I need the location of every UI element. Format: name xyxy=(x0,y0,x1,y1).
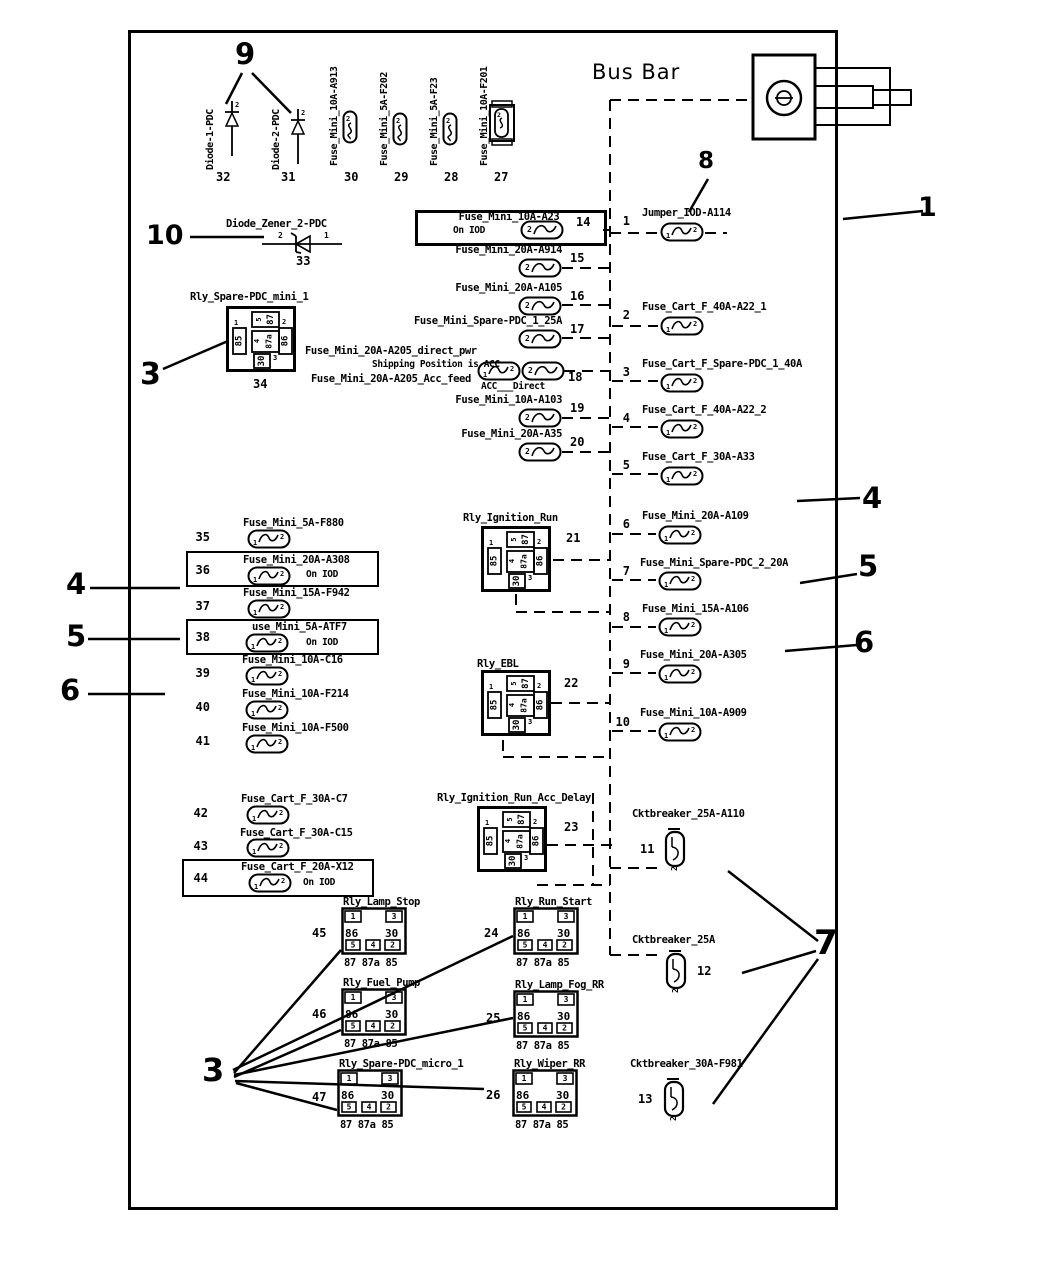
item-number: 13 xyxy=(638,1092,652,1106)
fuse-sub-label: ACC___Direct xyxy=(481,381,545,392)
svg-text:1: 1 xyxy=(666,326,670,334)
relay-icon: 851587487a862303 xyxy=(477,806,547,872)
fuse-label: Fuse_Mini_Spare-PDC_1_25A xyxy=(307,315,562,327)
svg-text:4: 4 xyxy=(508,703,516,707)
item-number: 39 xyxy=(188,666,210,680)
item-number: 26 xyxy=(486,1088,500,1102)
item-number: 31 xyxy=(281,170,295,184)
svg-text:30: 30 xyxy=(512,720,522,731)
svg-text:2: 2 xyxy=(278,231,283,240)
fuse-label: Fuse_Mini_20A-A105 xyxy=(307,282,562,294)
svg-text:1: 1 xyxy=(664,732,668,740)
fuse-label: Fuse_Mini_15A-A106 xyxy=(642,603,749,615)
fuse-icon: 2 xyxy=(518,442,562,462)
item-number: 7 xyxy=(614,564,630,578)
svg-text:2: 2 xyxy=(693,377,697,385)
fuse-icon: 12 xyxy=(660,316,704,336)
svg-text:2: 2 xyxy=(525,413,530,422)
svg-text:30: 30 xyxy=(385,1008,398,1021)
relay-icon: 138630542 xyxy=(337,1069,403,1117)
fuse-icon: 2 xyxy=(518,329,562,349)
svg-text:3: 3 xyxy=(392,993,397,1002)
fuse-label: Fuse_Mini_5A-F880 xyxy=(243,517,344,529)
svg-text:1: 1 xyxy=(251,744,255,752)
svg-text:87a: 87a xyxy=(265,334,274,349)
svg-text:2: 2 xyxy=(235,101,239,109)
svg-text:1: 1 xyxy=(253,576,257,584)
svg-text:1: 1 xyxy=(347,1074,352,1083)
fuse-icon: 12 xyxy=(658,525,702,545)
fuse-icon: 12 xyxy=(658,617,702,637)
svg-text:1: 1 xyxy=(253,539,257,547)
relay-icon: 851587487a862303 xyxy=(481,670,551,736)
fuse-icon: 2 xyxy=(520,220,564,240)
relay-label: Rly_Spare-PDC_mini_1 xyxy=(190,291,308,303)
svg-text:1: 1 xyxy=(251,710,255,718)
svg-text:2: 2 xyxy=(525,334,530,343)
fuse-label: Fuse_Mini_10A-F214 xyxy=(242,688,349,700)
circuit-breaker-icon: 2 xyxy=(664,948,688,996)
svg-text:1: 1 xyxy=(254,883,258,891)
svg-text:87: 87 xyxy=(521,678,531,689)
fuse-label: Fuse_Mini_10A-A103 xyxy=(307,394,562,406)
fuse-icon: 12 xyxy=(245,700,289,720)
fuse-label: Fuse_Mini_10A-C16 xyxy=(242,654,343,666)
item-number: 23 xyxy=(564,820,578,834)
svg-text:1: 1 xyxy=(666,429,670,437)
item-number: 25 xyxy=(486,1011,500,1025)
svg-text:2: 2 xyxy=(278,704,282,712)
svg-text:1: 1 xyxy=(253,609,257,617)
svg-text:2: 2 xyxy=(669,1116,678,1121)
item-number: 6 xyxy=(614,517,630,531)
item-number: 11 xyxy=(640,842,654,856)
fuse-label: Fuse_Cart_F_40A-A22_2 xyxy=(642,404,766,416)
relay-pin-caption: 87 87a 85 xyxy=(344,1038,397,1050)
item-number: 15 xyxy=(570,251,584,265)
svg-text:2: 2 xyxy=(386,1103,391,1112)
fuse-icon: 12 xyxy=(477,361,521,381)
svg-text:5: 5 xyxy=(255,317,263,321)
svg-text:5: 5 xyxy=(347,1103,352,1112)
relay-label: Rly_Ignition_Run xyxy=(463,512,558,524)
fuse-icon: 12 xyxy=(660,419,704,439)
svg-text:86: 86 xyxy=(536,556,546,567)
svg-text:1: 1 xyxy=(666,383,670,391)
callout-4-right: 4 xyxy=(862,484,882,513)
fuse-icon: 2 xyxy=(342,110,358,144)
svg-text:30: 30 xyxy=(257,356,267,367)
fuse-icon: 12 xyxy=(246,838,290,858)
svg-text:2: 2 xyxy=(691,529,695,537)
relay-pin-caption: 87 87a 85 xyxy=(340,1119,393,1131)
svg-text:2: 2 xyxy=(693,320,697,328)
breaker-label: Cktbreaker_25A-A110 xyxy=(632,808,745,820)
diode-2-label: Diode-2-PDC xyxy=(271,92,282,170)
svg-text:5: 5 xyxy=(510,681,518,685)
relay-icon: 851587487a862303 xyxy=(481,526,551,592)
svg-text:2: 2 xyxy=(562,1024,567,1033)
svg-text:4: 4 xyxy=(542,1103,547,1112)
relay-icon: 138630542 xyxy=(341,988,407,1036)
svg-text:1: 1 xyxy=(666,232,670,240)
item-number: 8 xyxy=(614,610,630,624)
svg-text:1: 1 xyxy=(485,819,489,827)
svg-text:30: 30 xyxy=(556,1089,569,1102)
relay-pin-caption: 87 87a 85 xyxy=(516,957,569,969)
fuse-icon: 12 xyxy=(248,873,292,893)
fuse-icon: 12 xyxy=(245,633,289,653)
svg-text:3: 3 xyxy=(563,1074,568,1083)
fuse-note: On IOD xyxy=(303,877,335,888)
svg-text:4: 4 xyxy=(371,941,376,950)
circuit-breaker-icon: 2 xyxy=(663,826,687,874)
svg-text:4: 4 xyxy=(253,339,261,343)
svg-text:2: 2 xyxy=(533,818,537,826)
item-number: 24 xyxy=(484,926,498,940)
fuse-icon: 12 xyxy=(245,734,289,754)
svg-text:86: 86 xyxy=(345,1008,359,1021)
pdc-fuse-diagram: Bus Bar Diode-1-PDC 2 32 Diode-2-PDC 2 3… xyxy=(0,0,1048,1273)
svg-text:4: 4 xyxy=(367,1103,372,1112)
svg-text:86: 86 xyxy=(341,1089,355,1102)
svg-text:2: 2 xyxy=(527,225,532,234)
svg-text:1: 1 xyxy=(664,674,668,682)
callout-6-right: 6 xyxy=(854,628,874,657)
item-number: 4 xyxy=(614,411,630,425)
fuse-icon: 2 xyxy=(442,112,458,146)
fuse-label: Fuse_Mini_5A-F202 xyxy=(379,66,390,166)
callout-3-top: 3 xyxy=(140,360,161,390)
bus-bar-label: Bus Bar xyxy=(592,60,680,84)
svg-text:2: 2 xyxy=(525,263,530,272)
svg-text:5: 5 xyxy=(351,941,356,950)
fuse-label: Fuse_Mini_Spare-PDC_2_20A xyxy=(640,557,788,569)
callout-9: 9 xyxy=(235,40,255,69)
fuse-icon: 2 xyxy=(518,296,562,316)
item-number: 17 xyxy=(570,322,584,336)
svg-text:87: 87 xyxy=(266,314,276,325)
svg-text:30: 30 xyxy=(381,1089,394,1102)
svg-text:2: 2 xyxy=(390,1022,395,1031)
svg-text:2: 2 xyxy=(528,366,533,375)
svg-text:30: 30 xyxy=(385,927,398,940)
svg-text:2: 2 xyxy=(282,318,286,326)
svg-text:86: 86 xyxy=(517,927,531,940)
diode-icon: 2 xyxy=(222,96,242,160)
item-number: 42 xyxy=(186,806,208,820)
svg-text:2: 2 xyxy=(561,1103,566,1112)
callout-4-left: 4 xyxy=(66,570,86,599)
item-number: 47 xyxy=(312,1090,326,1104)
jumper-icon: 12 xyxy=(660,222,704,242)
svg-text:86: 86 xyxy=(345,927,359,940)
svg-text:87: 87 xyxy=(517,814,527,825)
item-number: 44 xyxy=(186,871,208,885)
item-number: 5 xyxy=(614,458,630,472)
svg-text:3: 3 xyxy=(528,718,532,726)
svg-text:3: 3 xyxy=(524,854,528,862)
svg-text:1: 1 xyxy=(489,683,493,691)
item-number: 2 xyxy=(614,308,630,322)
item-number: 19 xyxy=(570,401,584,415)
callout-3-bottom: 3 xyxy=(202,1054,224,1086)
item-number: 35 xyxy=(188,530,210,544)
svg-text:3: 3 xyxy=(392,912,397,921)
fuse-label: Fuse_Mini_20A-A205_Acc_feed xyxy=(311,373,471,385)
svg-text:2: 2 xyxy=(280,533,284,541)
svg-text:5: 5 xyxy=(510,537,518,541)
svg-text:1: 1 xyxy=(252,848,256,856)
svg-text:3: 3 xyxy=(564,995,569,1004)
fuse-icon: 12 xyxy=(660,466,704,486)
fuse-icon: 2 xyxy=(518,258,562,278)
item-number: 29 xyxy=(394,170,408,184)
callout-8: 8 xyxy=(698,150,714,173)
diode-icon: 2 xyxy=(288,104,308,168)
breaker-label: Cktbreaker_30A-F981 xyxy=(630,1058,743,1070)
breaker-label: Cktbreaker_25A xyxy=(632,934,715,946)
item-number: 14 xyxy=(576,215,590,229)
svg-text:2: 2 xyxy=(279,809,283,817)
item-number: 45 xyxy=(312,926,326,940)
svg-text:5: 5 xyxy=(506,817,514,821)
svg-text:2: 2 xyxy=(446,117,450,125)
svg-text:1: 1 xyxy=(351,993,356,1002)
svg-text:1: 1 xyxy=(664,627,668,635)
svg-text:3: 3 xyxy=(528,574,532,582)
svg-text:2: 2 xyxy=(278,637,282,645)
item-number: 27 xyxy=(494,170,508,184)
fuse-label: Fuse_Mini_20A-A305 xyxy=(640,649,747,661)
svg-text:1: 1 xyxy=(523,995,528,1004)
fuse-icon: 12 xyxy=(245,666,289,686)
svg-text:2: 2 xyxy=(278,738,282,746)
item-number: 22 xyxy=(564,676,578,690)
svg-text:87a: 87a xyxy=(516,834,525,849)
svg-text:2: 2 xyxy=(280,570,284,578)
item-number: 9 xyxy=(614,657,630,671)
relay-icon: 138630542 xyxy=(513,990,579,1038)
item-number: 38 xyxy=(188,630,210,644)
svg-text:5: 5 xyxy=(351,1022,356,1031)
svg-text:2: 2 xyxy=(510,365,514,373)
svg-text:4: 4 xyxy=(508,559,516,563)
svg-text:86: 86 xyxy=(517,1010,531,1023)
svg-text:2: 2 xyxy=(562,941,567,950)
svg-text:1: 1 xyxy=(523,912,528,921)
svg-text:1: 1 xyxy=(664,535,668,543)
fuse-icon: 2 xyxy=(489,100,515,146)
item-number: 3 xyxy=(614,365,630,379)
relay-icon: 851587487a862303 xyxy=(226,306,296,372)
svg-text:30: 30 xyxy=(508,856,518,867)
fuse-label: Fuse_Mini_10A-F500 xyxy=(242,722,349,734)
relay-icon: 138630542 xyxy=(341,907,407,955)
svg-text:86: 86 xyxy=(516,1089,530,1102)
svg-text:1: 1 xyxy=(234,319,238,327)
fuse-label: Fuse_Cart_F_40A-A22_1 xyxy=(642,301,766,313)
item-number: 18 xyxy=(568,370,582,384)
svg-text:2: 2 xyxy=(691,726,695,734)
svg-text:2: 2 xyxy=(396,117,400,125)
svg-text:2: 2 xyxy=(537,682,541,690)
item-number: 46 xyxy=(312,1007,326,1021)
jumper-label: Jumper_IOD-A114 xyxy=(642,207,731,219)
callout-10: 10 xyxy=(146,222,184,249)
svg-text:1: 1 xyxy=(252,815,256,823)
fuse-note: On IOD xyxy=(306,569,338,580)
item-number: 21 xyxy=(566,531,580,545)
relay-label: Rly_Ignition_Run_Acc_Delay xyxy=(437,792,591,804)
item-number: 30 xyxy=(344,170,358,184)
svg-text:87a: 87a xyxy=(520,698,529,713)
item-number: 33 xyxy=(296,254,310,268)
item-number: 43 xyxy=(186,839,208,853)
fuse-icon: 12 xyxy=(658,571,702,591)
svg-text:2: 2 xyxy=(280,603,284,611)
svg-text:1: 1 xyxy=(483,371,487,379)
svg-text:87a: 87a xyxy=(520,554,529,569)
fuse-label: Fuse_Mini_20A-A35 xyxy=(307,428,562,440)
svg-text:87: 87 xyxy=(521,534,531,545)
fuse-icon: 12 xyxy=(660,373,704,393)
svg-text:2: 2 xyxy=(670,866,679,871)
svg-text:1: 1 xyxy=(351,912,356,921)
relay-label: Rly_EBL xyxy=(477,658,518,670)
fuse-label: Fuse_Mini_20A-A205_direct_pwr xyxy=(305,345,477,357)
svg-text:2: 2 xyxy=(279,842,283,850)
svg-text:3: 3 xyxy=(273,354,277,362)
svg-text:2: 2 xyxy=(691,575,695,583)
svg-text:2: 2 xyxy=(278,670,282,678)
relay-pin-caption: 87 87a 85 xyxy=(516,1040,569,1052)
svg-text:2: 2 xyxy=(281,877,285,885)
fuse-label: Fuse_Mini_10A-A913 xyxy=(329,60,340,166)
svg-text:2: 2 xyxy=(693,423,697,431)
svg-text:86: 86 xyxy=(536,700,546,711)
diode-1-label: Diode-1-PDC xyxy=(205,84,216,170)
callout-5-right: 5 xyxy=(858,552,878,581)
svg-text:1: 1 xyxy=(666,476,670,484)
item-number: 20 xyxy=(570,435,584,449)
svg-text:4: 4 xyxy=(504,839,512,843)
fuse-label: Fuse_Cart_F_Spare-PDC_1_40A xyxy=(642,358,802,370)
svg-text:30: 30 xyxy=(557,1010,570,1023)
svg-text:1: 1 xyxy=(324,231,329,240)
svg-text:5: 5 xyxy=(523,1024,528,1033)
svg-text:2: 2 xyxy=(691,621,695,629)
svg-text:30: 30 xyxy=(512,576,522,587)
svg-text:86: 86 xyxy=(281,336,291,347)
svg-text:4: 4 xyxy=(543,941,548,950)
svg-text:1: 1 xyxy=(251,643,255,651)
svg-text:30: 30 xyxy=(557,927,570,940)
callout-6-left: 6 xyxy=(60,676,80,705)
svg-text:2: 2 xyxy=(301,109,305,117)
fuse-label: Fuse_Cart_F_30A-A33 xyxy=(642,451,755,463)
item-number: 34 xyxy=(253,377,267,391)
fuse-label: Fuse_Mini_20A-A308 xyxy=(243,554,350,566)
svg-text:5: 5 xyxy=(522,1103,527,1112)
fuse-label: Fuse_Mini_5A-F23 xyxy=(429,73,440,166)
fuse-note: On IOD xyxy=(453,225,485,236)
svg-text:85: 85 xyxy=(235,336,245,347)
fuse-label: Fuse_Mini_20A-A109 xyxy=(642,510,749,522)
fuse-icon: 12 xyxy=(246,805,290,825)
svg-text:2: 2 xyxy=(693,226,697,234)
svg-text:4: 4 xyxy=(543,1024,548,1033)
item-number: 41 xyxy=(188,734,210,748)
fuse-icon: 12 xyxy=(247,599,291,619)
item-number: 36 xyxy=(188,563,210,577)
svg-text:85: 85 xyxy=(490,556,500,567)
relay-icon: 138630542 xyxy=(512,1069,578,1117)
item-number: 37 xyxy=(188,599,210,613)
item-number: 28 xyxy=(444,170,458,184)
item-number: 40 xyxy=(188,700,210,714)
item-number: 10 xyxy=(608,715,630,729)
callout-7: 7 xyxy=(814,926,838,960)
fuse-note: On IOD xyxy=(306,637,338,648)
svg-text:1: 1 xyxy=(664,581,668,589)
svg-text:2: 2 xyxy=(525,301,530,310)
callout-5-left: 5 xyxy=(66,622,86,651)
svg-text:5: 5 xyxy=(523,941,528,950)
svg-text:4: 4 xyxy=(371,1022,376,1031)
svg-text:3: 3 xyxy=(388,1074,393,1083)
item-number: 16 xyxy=(570,289,584,303)
svg-text:1: 1 xyxy=(489,539,493,547)
fuse-label: Fuse_Mini_10A-A23 xyxy=(417,211,601,223)
svg-text:85: 85 xyxy=(486,836,496,847)
fuse-icon: 12 xyxy=(658,722,702,742)
circuit-breaker-icon: 2 xyxy=(662,1076,686,1124)
svg-text:85: 85 xyxy=(490,700,500,711)
svg-text:2: 2 xyxy=(497,111,501,119)
svg-text:2: 2 xyxy=(693,470,697,478)
fuse-label: Fuse_Cart_F_20A-X12 xyxy=(241,861,354,873)
fuse-icon: 2 xyxy=(521,361,565,381)
fuse-icon: 12 xyxy=(658,664,702,684)
relay-pin-caption: 87 87a 85 xyxy=(344,957,397,969)
svg-text:2: 2 xyxy=(346,115,350,123)
svg-text:86: 86 xyxy=(532,836,542,847)
item-number: 1 xyxy=(614,214,630,228)
item-number: 12 xyxy=(697,964,711,978)
svg-text:2: 2 xyxy=(671,988,680,993)
fuse-label: Fuse_Cart_F_30A-C7 xyxy=(241,793,348,805)
fuse-label: use_Mini_5A-ATF7 xyxy=(252,621,347,633)
relay-pin-caption: 87 87a 85 xyxy=(515,1119,568,1131)
fuse-icon: 12 xyxy=(247,529,291,549)
item-number: 32 xyxy=(216,170,230,184)
fuse-label: Fuse_Mini_15A-F942 xyxy=(243,587,350,599)
fuse-label: Fuse_Mini_10A-A909 xyxy=(640,707,747,719)
fuse-icon: 2 xyxy=(518,408,562,428)
fuse-icon: 2 xyxy=(392,112,408,146)
callout-1: 1 xyxy=(918,194,937,221)
svg-text:2: 2 xyxy=(390,941,395,950)
svg-text:2: 2 xyxy=(537,538,541,546)
relay-icon: 138630542 xyxy=(513,907,579,955)
svg-text:2: 2 xyxy=(525,447,530,456)
svg-text:1: 1 xyxy=(251,676,255,684)
svg-text:2: 2 xyxy=(691,668,695,676)
svg-text:1: 1 xyxy=(522,1074,527,1083)
fuse-icon: 12 xyxy=(247,566,291,586)
svg-text:3: 3 xyxy=(564,912,569,921)
